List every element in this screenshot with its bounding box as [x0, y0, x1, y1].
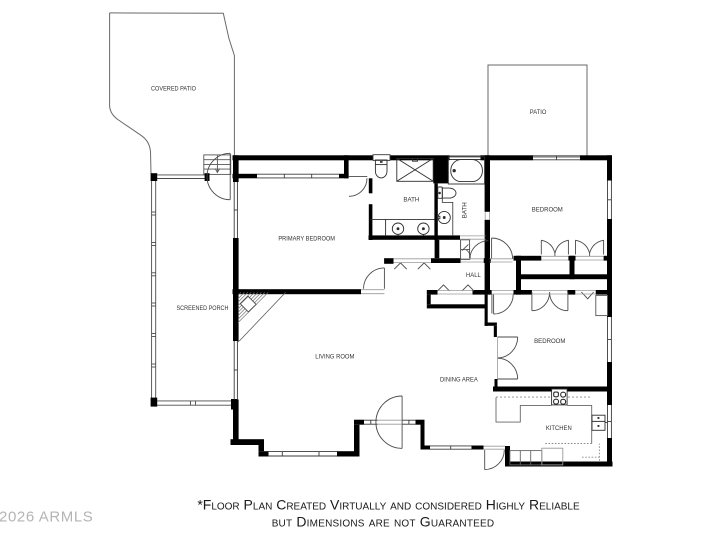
svg-text:BATH: BATH: [403, 197, 419, 204]
svg-text:KITCHEN: KITCHEN: [546, 425, 572, 432]
svg-text:2026 ARMLS: 2026 ARMLS: [0, 509, 93, 526]
svg-text:but Dimensions are not Guarant: but Dimensions are not Guaranteed: [272, 514, 495, 530]
svg-text:BEDROOM: BEDROOM: [532, 207, 563, 214]
svg-text:BEDROOM: BEDROOM: [534, 338, 566, 345]
svg-text:DINING AREA: DINING AREA: [440, 377, 478, 384]
svg-text:BATH: BATH: [462, 202, 469, 218]
svg-text:*Floor Plan Created Virtually: *Floor Plan Created Virtually and consid…: [197, 497, 580, 513]
svg-text:PRIMARY BEDROOM: PRIMARY BEDROOM: [278, 235, 335, 242]
svg-text:HALL: HALL: [466, 272, 481, 279]
svg-text:SCREENED PORCH: SCREENED PORCH: [177, 305, 229, 312]
svg-text:PATIO: PATIO: [530, 109, 547, 116]
svg-text:COVERED PATIO: COVERED PATIO: [151, 86, 196, 93]
svg-text:LIVING ROOM: LIVING ROOM: [315, 354, 354, 361]
